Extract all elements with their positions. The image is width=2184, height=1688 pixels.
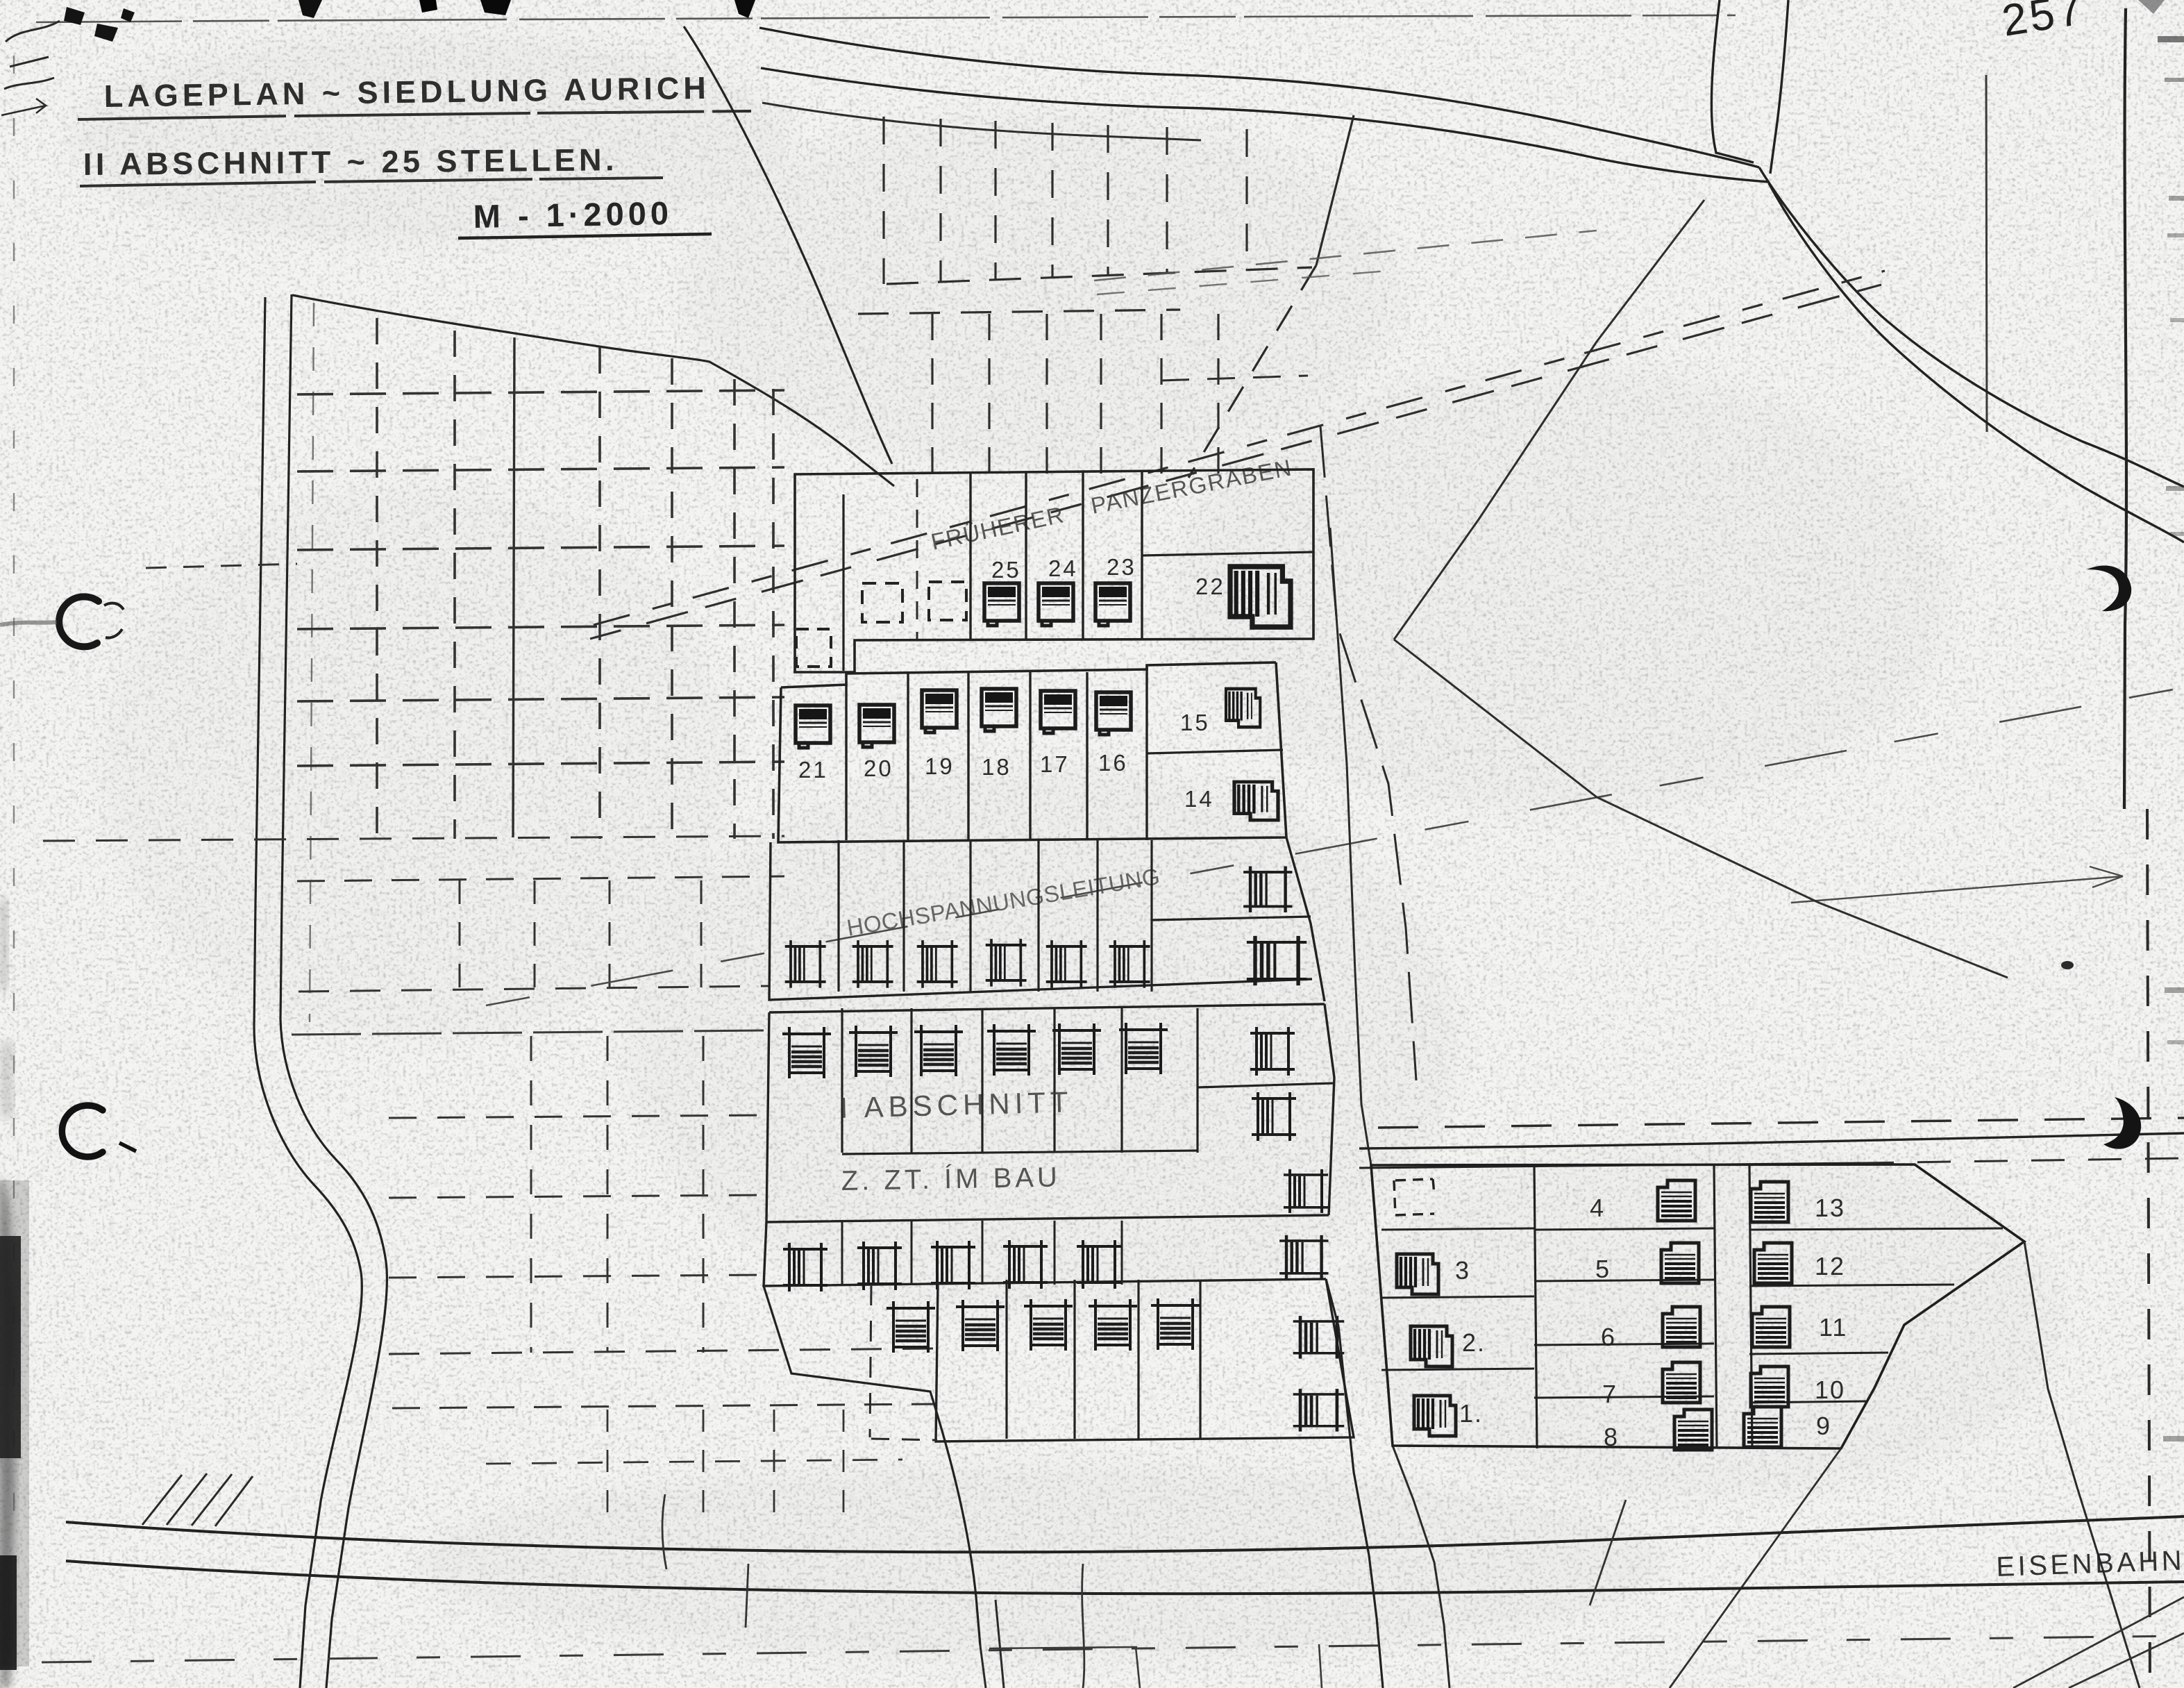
svg-text:25: 25 [991, 557, 1021, 583]
svg-text:2.: 2. [1462, 1328, 1486, 1357]
svg-text:13: 13 [1815, 1194, 1845, 1222]
svg-text:24: 24 [1048, 555, 1078, 581]
svg-text:8: 8 [1604, 1423, 1619, 1451]
svg-text:II ABSCHNITT ~ 25 STELLEN.: II ABSCHNITT ~ 25 STELLEN. [83, 142, 619, 182]
svg-text:17: 17 [1040, 751, 1070, 777]
svg-text:Z. ZT. ÍM BAU: Z. ZT. ÍM BAU [841, 1161, 1061, 1196]
svg-text:22: 22 [1195, 574, 1225, 599]
svg-text:7: 7 [1602, 1380, 1618, 1408]
svg-text:5: 5 [1595, 1255, 1611, 1283]
svg-text:15: 15 [1180, 710, 1210, 735]
svg-text:19: 19 [925, 753, 955, 779]
svg-text:I ABSCHNITT: I ABSCHNITT [839, 1085, 1073, 1124]
svg-text:M - 1·2000: M - 1·2000 [473, 194, 673, 235]
svg-text:EISENBAHN: EISENBAHN [1996, 1546, 2184, 1582]
svg-text:21: 21 [798, 757, 828, 783]
svg-text:18: 18 [982, 754, 1011, 780]
svg-text:9: 9 [1816, 1412, 1831, 1440]
svg-text:23: 23 [1107, 554, 1136, 580]
svg-text:16: 16 [1098, 750, 1128, 776]
svg-text:20: 20 [864, 755, 893, 781]
svg-text:11: 11 [1819, 1313, 1847, 1342]
svg-text:4: 4 [1590, 1194, 1605, 1222]
svg-text:10: 10 [1815, 1376, 1845, 1404]
svg-text:6: 6 [1601, 1323, 1616, 1351]
svg-text:12: 12 [1815, 1252, 1845, 1280]
svg-text:14: 14 [1184, 786, 1214, 812]
svg-text:1.: 1. [1459, 1399, 1483, 1428]
svg-text:3: 3 [1455, 1256, 1470, 1285]
